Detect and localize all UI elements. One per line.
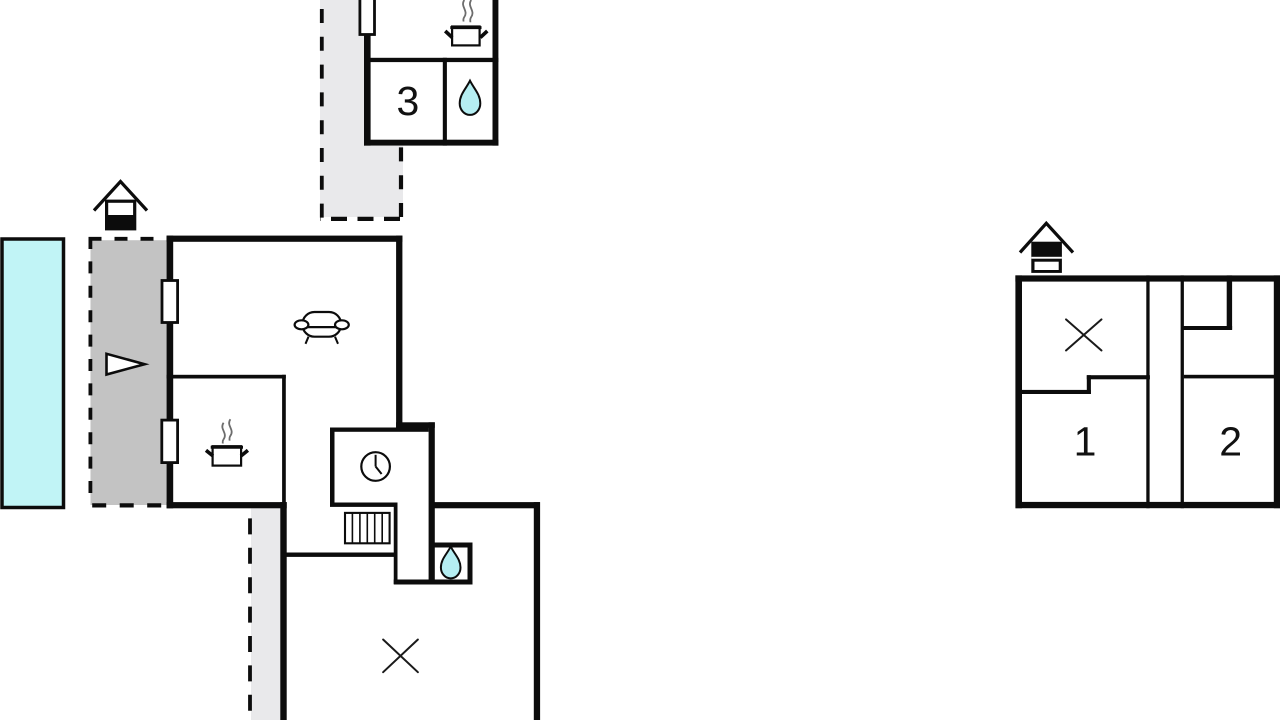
svg-text:3: 3 <box>396 78 419 124</box>
svg-text:1: 1 <box>1074 418 1097 464</box>
svg-text:2: 2 <box>1219 419 1242 465</box>
